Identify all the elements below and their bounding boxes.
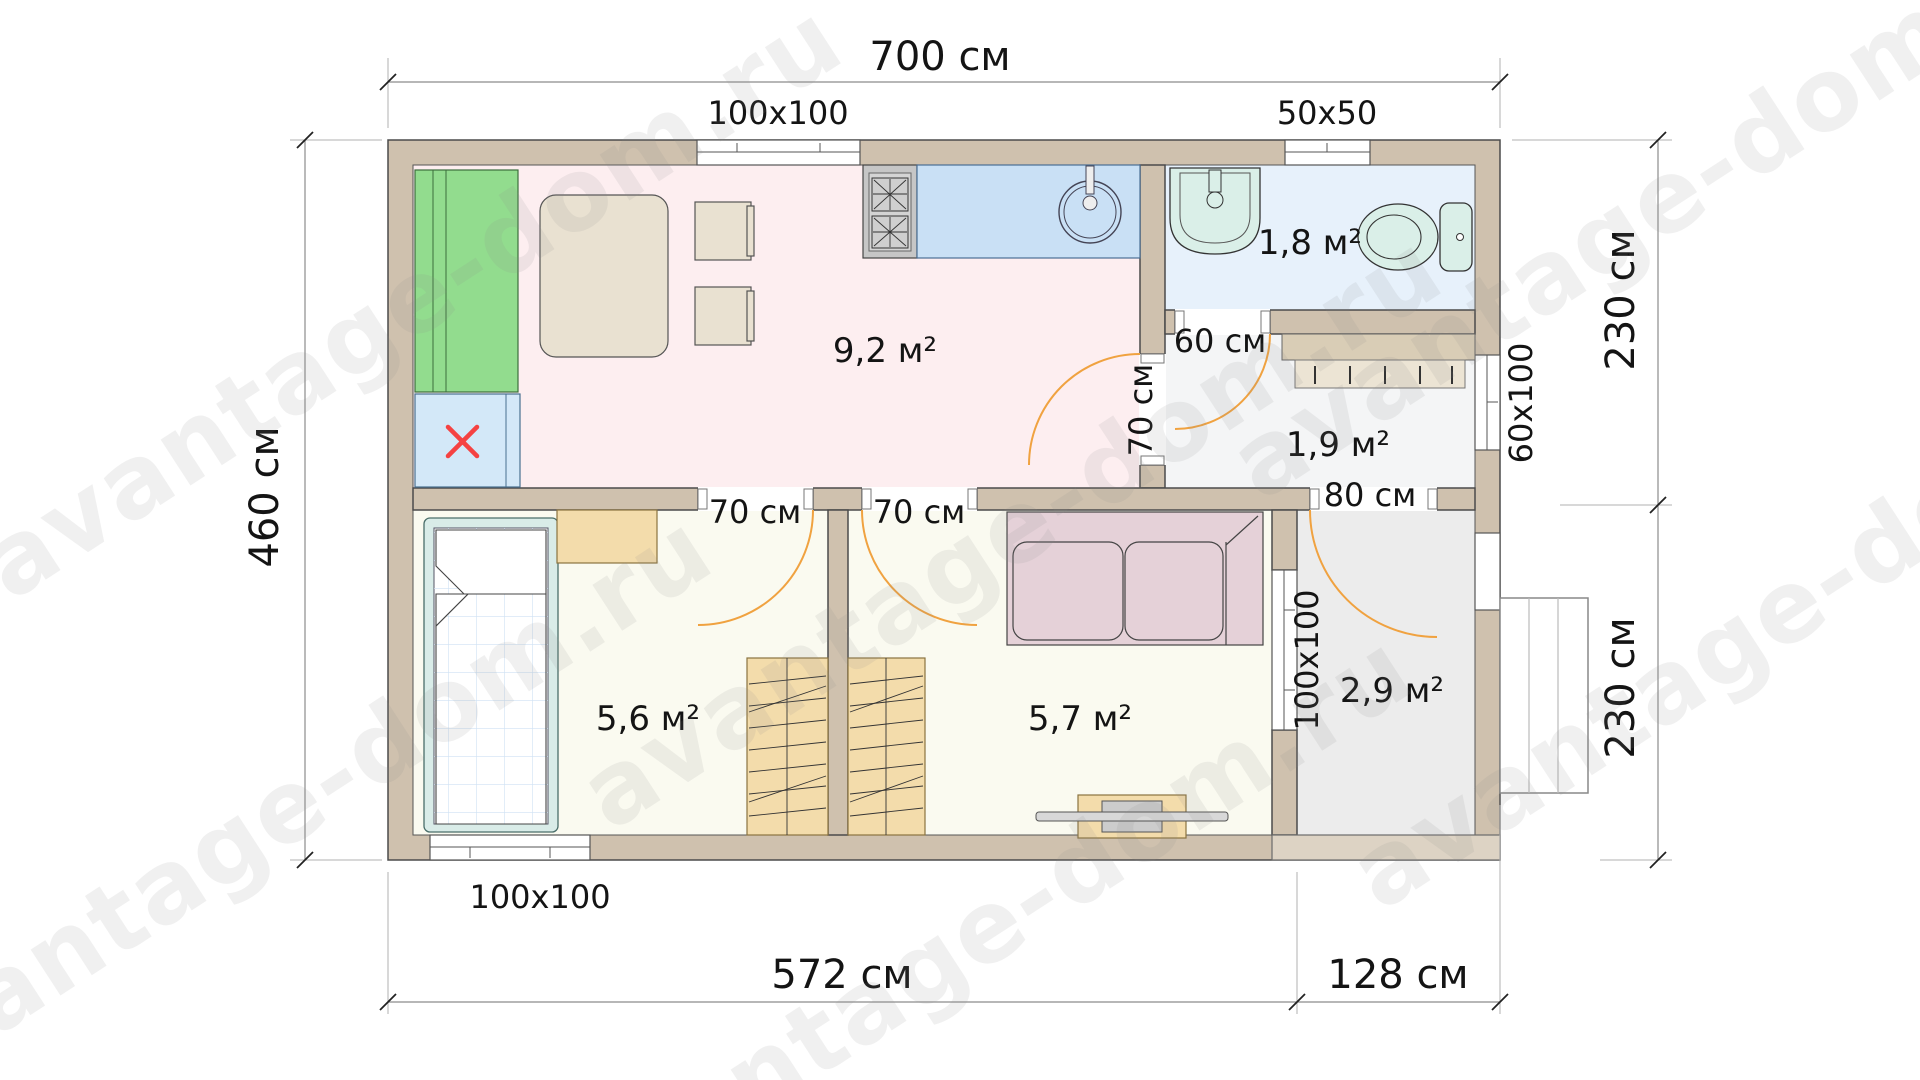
stove: [863, 165, 917, 258]
wall-main-horizontal-right: [1437, 488, 1475, 510]
door-entry-label: 80 см: [1324, 476, 1417, 514]
door-bedroom-label: 70 см: [709, 493, 802, 531]
wall-main-horizontal-pillar: [813, 488, 862, 510]
window-bedroom-bottom: [430, 835, 590, 860]
stool-1: [695, 202, 754, 260]
area-lounge: 5,7 м²: [1028, 699, 1132, 739]
dim-bottom-right-label: 128 см: [1327, 952, 1468, 998]
kitchen-faucet: [1086, 166, 1094, 194]
floor-plan-svg: 700 см 460 см 230 см 230 см 572 см 128 с…: [0, 0, 1920, 1080]
stool-2: [695, 287, 754, 345]
wall-kitchen-column-upper: [1140, 165, 1165, 354]
area-kitchen-living: 9,2 м²: [833, 331, 937, 371]
bathroom-sink: [1170, 168, 1260, 254]
entry-exterior-door-opening: [1475, 533, 1500, 610]
dim-top-label: 700 см: [869, 34, 1010, 80]
washing-machine-spot: [415, 394, 520, 487]
window-bathroom-top-label: 50x50: [1277, 94, 1377, 132]
window-bedroom-bottom-label: 100x100: [469, 878, 610, 916]
floor-plan-page: 700 см 460 см 230 см 230 см 572 см 128 с…: [0, 0, 1920, 1080]
kitchen-counter: [917, 165, 1140, 258]
window-bathroom-top: [1285, 140, 1370, 165]
